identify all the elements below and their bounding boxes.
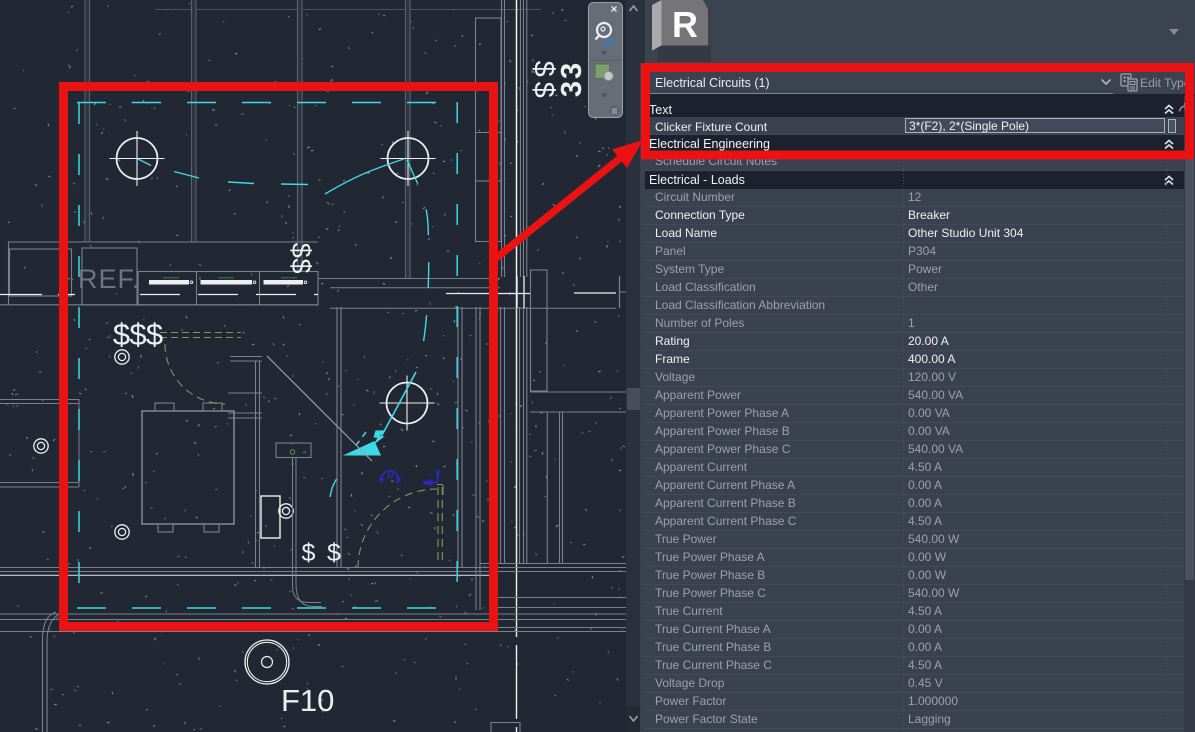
svg-text:$: $ bbox=[146, 317, 163, 352]
svg-text:$: $ bbox=[129, 317, 146, 352]
svg-text:F10: F10 bbox=[281, 683, 334, 718]
svg-text:$: $ bbox=[302, 539, 316, 567]
svg-text:$: $ bbox=[327, 539, 341, 567]
svg-text:$: $ bbox=[286, 243, 316, 258]
svg-text:$: $ bbox=[528, 82, 560, 98]
svg-text:REF.: REF. bbox=[78, 264, 141, 294]
svg-text:$: $ bbox=[286, 258, 316, 273]
svg-text:2D: 2D bbox=[603, 37, 615, 48]
svg-text:$: $ bbox=[113, 317, 130, 352]
svg-text:$: $ bbox=[528, 61, 560, 77]
svg-text:R: R bbox=[672, 4, 698, 45]
svg-text:33: 33 bbox=[556, 61, 588, 97]
